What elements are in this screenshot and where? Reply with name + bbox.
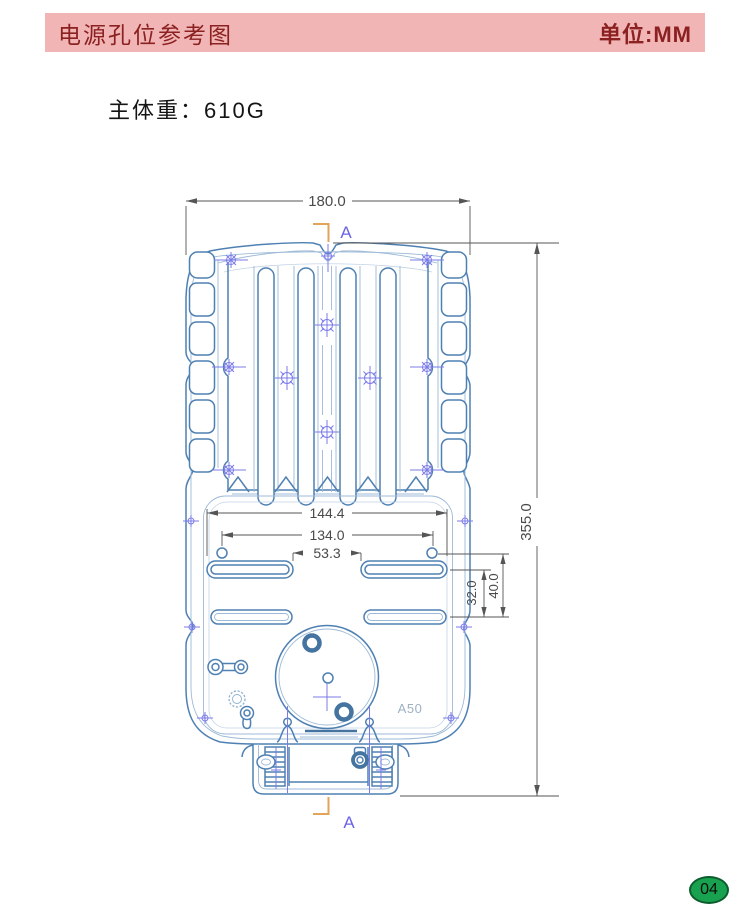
section-letter-bottom: A — [343, 813, 355, 832]
section-bracket-top — [313, 224, 329, 242]
mount-hole-right — [427, 548, 437, 558]
section-marker-bottom: A — [313, 797, 355, 832]
dim-overall-height-value: 355.0 — [518, 503, 535, 541]
bracket-ear-right — [376, 755, 394, 769]
catalog-page: 电源孔位参考图 单位:MM 主体重：610G — [0, 0, 750, 919]
dim-overall-width-value: 180.0 — [308, 193, 346, 210]
page-number: 04 — [700, 881, 718, 899]
technical-drawing: A50 — [0, 0, 750, 919]
page-number-badge: 04 — [689, 876, 729, 904]
part-label: A50 — [398, 701, 423, 716]
section-marker-top: A — [313, 223, 352, 242]
right-rib-stack — [442, 252, 467, 472]
mount-hole-left — [217, 548, 227, 558]
dim-slot-outer-width-value: 144.4 — [309, 505, 344, 521]
left-rib-stack — [190, 252, 215, 472]
bracket-ear-left — [257, 755, 275, 769]
dim-hole-spacing-value: 134.0 — [309, 527, 344, 543]
dim-slot-row-spacing-value: 32.0 — [464, 580, 479, 605]
dim-slot-inner-gap-value: 53.3 — [313, 545, 340, 561]
mount-bracket — [253, 744, 398, 794]
section-bracket-bottom — [313, 797, 329, 814]
bracket-keyhole-screw — [353, 748, 367, 768]
section-letter-top: A — [340, 223, 352, 242]
dim-hole-to-row-spacing-value: 40.0 — [486, 573, 501, 598]
